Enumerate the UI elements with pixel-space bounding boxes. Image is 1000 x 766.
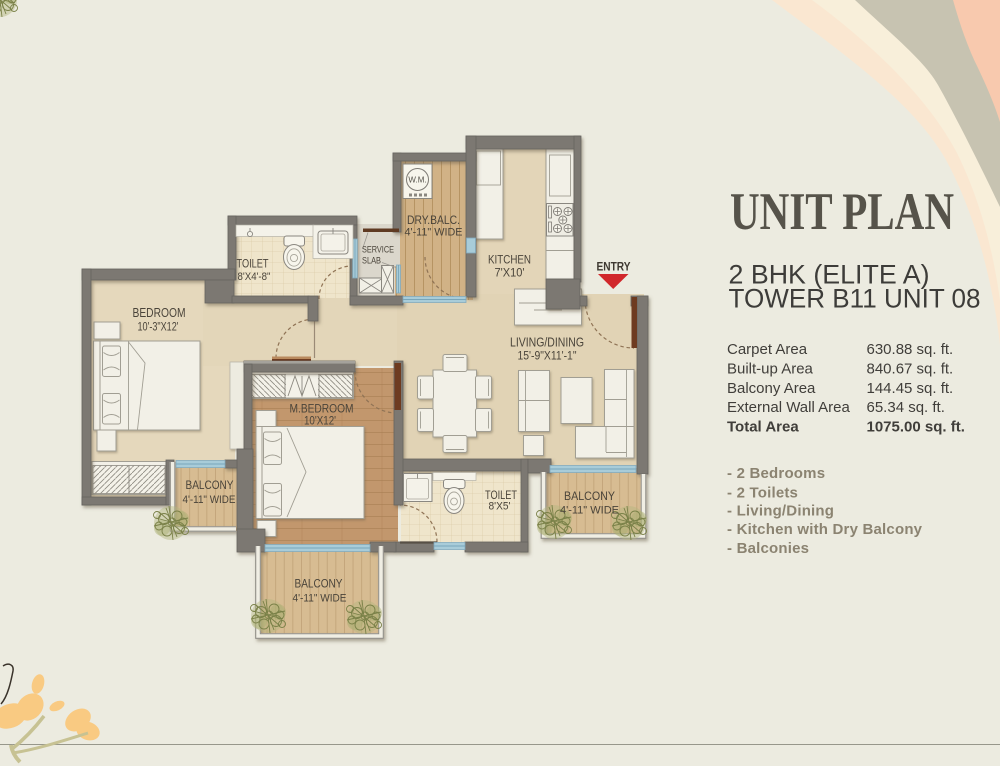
svg-text:TOILET: TOILET — [237, 259, 269, 271]
svg-text:BALCONY: BALCONY — [186, 480, 234, 492]
svg-text:BEDROOM: BEDROOM — [133, 306, 186, 320]
svg-text:W.M.: W.M. — [408, 176, 426, 185]
svg-text:15'-9"X11'-1": 15'-9"X11'-1" — [518, 349, 577, 363]
svg-text:M.BEDROOM: M.BEDROOM — [290, 402, 354, 416]
svg-text:Balcony Area: Balcony Area — [727, 380, 816, 397]
svg-text:- Balconies: - Balconies — [727, 540, 809, 557]
svg-text:4'-11" WIDE: 4'-11" WIDE — [560, 505, 619, 517]
svg-text:4'-11" WIDE: 4'-11" WIDE — [183, 494, 236, 506]
svg-text:8'X5': 8'X5' — [489, 501, 511, 513]
svg-text:840.67 sq. ft.: 840.67 sq. ft. — [867, 360, 954, 377]
svg-text:LIVING/DINING: LIVING/DINING — [510, 336, 584, 350]
svg-text:8'X4'-8": 8'X4'-8" — [238, 271, 271, 283]
svg-text:External Wall Area: External Wall Area — [727, 399, 850, 416]
svg-text:SERVICE: SERVICE — [362, 245, 394, 256]
svg-text:144.45 sq. ft.: 144.45 sq. ft. — [867, 380, 954, 397]
svg-text:10'X12': 10'X12' — [304, 416, 336, 428]
svg-text:TOWER B11 UNIT 08: TOWER B11 UNIT 08 — [729, 284, 981, 314]
svg-text:4'-11" WIDE: 4'-11" WIDE — [405, 227, 463, 239]
svg-text:Total Area: Total Area — [727, 418, 799, 435]
svg-text:KITCHEN: KITCHEN — [488, 253, 531, 267]
svg-text:Built-up Area: Built-up Area — [727, 360, 814, 377]
svg-text:- Living/Dining: - Living/Dining — [727, 502, 834, 519]
svg-text:4'-11" WIDE: 4'-11" WIDE — [293, 593, 347, 605]
svg-text:UNIT PLAN: UNIT PLAN — [730, 183, 954, 241]
svg-text:DRY.BALC.: DRY.BALC. — [407, 215, 460, 227]
svg-text:1075.00 sq. ft.: 1075.00 sq. ft. — [867, 418, 965, 435]
svg-text:10'-3"X12': 10'-3"X12' — [138, 320, 179, 334]
svg-text:BALCONY: BALCONY — [564, 491, 615, 503]
svg-text:- 2 Toilets: - 2 Toilets — [727, 484, 798, 501]
svg-text:SLAB: SLAB — [362, 256, 381, 267]
svg-text:- 2 Bedrooms: - 2 Bedrooms — [727, 465, 825, 482]
svg-text:65.34 sq. ft.: 65.34 sq. ft. — [867, 399, 945, 416]
svg-text:BALCONY: BALCONY — [295, 579, 343, 591]
svg-text:630.88 sq. ft.: 630.88 sq. ft. — [867, 341, 954, 358]
svg-text:- Kitchen with Dry Balcony: - Kitchen with Dry Balcony — [727, 521, 923, 538]
svg-text:Carpet Area: Carpet Area — [727, 341, 808, 358]
svg-text:ENTRY: ENTRY — [597, 260, 631, 274]
svg-text:7'X10': 7'X10' — [495, 268, 525, 280]
